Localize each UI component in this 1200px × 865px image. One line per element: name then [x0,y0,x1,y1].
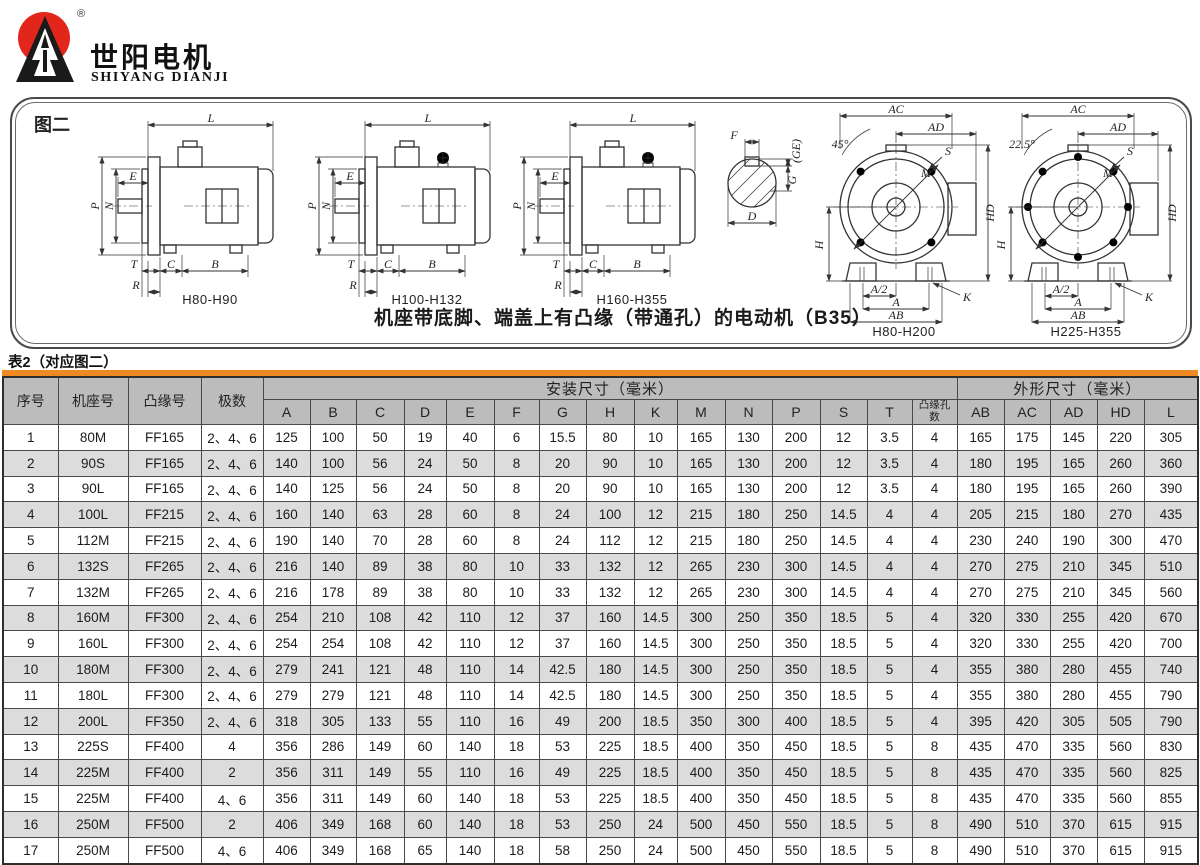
column-header: C [356,400,404,425]
motor-outline [840,145,976,281]
figure-caption: 机座带底脚、端盖上有凸缘（带通孔）的电动机（B35） [374,303,872,330]
table-cell: 110 [446,760,494,786]
table-cell: 70 [356,528,404,554]
table-cell: 300 [725,708,772,734]
column-header: T [867,400,912,425]
table-cell: 225M [58,786,128,812]
table-cell: 2、4、6 [201,682,263,708]
table-cell: 216 [263,553,310,579]
table-cell: 265 [677,579,725,605]
table-row: 11180LFF3002、4、6279279121481101442.51801… [3,682,1198,708]
table-cell: 140 [310,553,356,579]
dim-label-p: P [512,202,524,211]
table-cell: 89 [356,553,404,579]
table-cell: 420 [1004,708,1050,734]
table-cell: 205 [957,502,1004,528]
table-cell: 275 [1004,579,1050,605]
table-cell: 4 [912,631,957,657]
dim-label-r: R [131,278,140,292]
table-cell: 18.5 [820,734,867,760]
table-cell: 132S [58,553,128,579]
table-cell: 165 [1050,476,1097,502]
table-cell: 279 [263,657,310,683]
table-cell: FF500 [128,811,201,837]
table-cell: 18.5 [820,760,867,786]
table-cell: 855 [1144,786,1198,812]
table-cell: 4 [867,502,912,528]
table-cell: 2、4、6 [201,502,263,528]
table-cell: 335 [1050,734,1097,760]
table-cell: 255 [1050,605,1097,631]
table-cell: 279 [310,682,356,708]
table-cell: FF400 [128,786,201,812]
table-cell: 400 [677,786,725,812]
dim-label-k: K [962,290,972,304]
dim-label-ab: AB [1070,308,1086,322]
table-cell: 4 [201,734,263,760]
table-cell: 615 [1097,811,1144,837]
table-cell: 180 [957,450,1004,476]
table-cell: 215 [677,502,725,528]
table-cell: 8 [3,605,58,631]
table-cell: 215 [677,528,725,554]
table-cell: 10 [634,425,677,451]
table-cell: 250 [725,631,772,657]
table-cell: 395 [957,708,1004,734]
table-cell: 14.5 [634,631,677,657]
column-header: AC [1004,400,1050,425]
motor-outline [1022,145,1158,281]
table-cell: 53 [539,811,586,837]
table-cell: 110 [446,605,494,631]
dim-label-hd: HD [1165,204,1179,223]
table-cell: 89 [356,579,404,605]
table-cell: 18.5 [820,682,867,708]
table-cell: 254 [263,631,310,657]
table-cell: 48 [404,657,446,683]
table-cell: 355 [957,682,1004,708]
table-cell: 260 [1097,476,1144,502]
table-cell: 80 [446,579,494,605]
table-cell: 435 [957,786,1004,812]
dim-label-s: S [1127,144,1133,158]
table-cell: 455 [1097,657,1144,683]
dim-label-p: P [90,202,102,211]
table-cell: 370 [1050,811,1097,837]
table-cell: 560 [1097,734,1144,760]
dim-label-g: G [785,175,799,184]
table-row: 5112MFF2152、4、61901407028608241121221518… [3,528,1198,554]
table-cell: 400 [772,708,820,734]
table-cell: FF165 [128,450,201,476]
table-cell: 60 [404,786,446,812]
table-cell: 12 [820,450,867,476]
table-cell: 18.5 [634,734,677,760]
table-cell: 180 [586,657,634,683]
table-row: 8160MFF3002、4、625421010842110123716014.5… [3,605,1198,631]
table-cell: 5 [867,682,912,708]
table-cell: 180 [725,502,772,528]
table-cell: 6 [494,425,539,451]
table-cell: 110 [446,708,494,734]
table-row: 6132SFF2652、4、62161408938801033132122652… [3,553,1198,579]
table-cell: 53 [539,734,586,760]
table-cell: 18 [494,837,539,863]
table-cell: 12 [634,579,677,605]
table-cell: 300 [677,605,725,631]
table-cell: 390 [1144,476,1198,502]
dim-label-m: M [920,166,932,180]
table-cell: 24 [634,837,677,863]
dim-label-t: T [553,257,561,271]
table-cell: 490 [957,811,1004,837]
dim-label-n: N [524,201,538,211]
table-cell: 53 [539,786,586,812]
table-cell: 254 [263,605,310,631]
table-cell: 8 [912,760,957,786]
table-cell: 14.5 [634,605,677,631]
table-cell: 33 [539,579,586,605]
table-cell: 100 [310,425,356,451]
foot-slots [860,267,932,281]
drawing-side-view-1: L P N E T C B R H80-H90 [90,111,305,312]
table-cell: 2、4、6 [201,605,263,631]
column-header: F [494,400,539,425]
table-cell: 121 [356,657,404,683]
table-cell: 490 [957,837,1004,863]
motor-side-view: L P N E T C B R H80-H90 [90,111,305,307]
table-cell: 18.5 [820,657,867,683]
dim-label-c: C [384,257,393,271]
table-cell: 16 [3,811,58,837]
table-cell: 4 [3,502,58,528]
drawing-side-view-3: L P N E T C B R H160-H355 [512,111,727,312]
table-cell: 37 [539,631,586,657]
table-cell: 380 [1004,657,1050,683]
table-cell: 108 [356,631,404,657]
table-cell: 140 [263,476,310,502]
table-cell: 560 [1144,579,1198,605]
table-cell: 356 [263,760,310,786]
table-cell: 2、4、6 [201,528,263,554]
column-header: 凸缘孔数 [912,400,957,425]
table-cell: 80M [58,425,128,451]
table-cell: 180L [58,682,128,708]
table-cell: 63 [356,502,404,528]
column-header: N [725,400,772,425]
dim-label-l: L [424,111,432,125]
dim-label-a: A [1073,295,1082,309]
table-cell: 241 [310,657,356,683]
table-cell: 254 [310,631,356,657]
table-cell: 4 [912,682,957,708]
table-cell: 450 [772,734,820,760]
table-cell: 350 [725,786,772,812]
table-cell: 2、4、6 [201,425,263,451]
motor-front-view: AC AD 22.5° S M HD H A/2 A AB K H225-H35… [994,103,1184,339]
motor-outline [540,141,695,255]
table-cell: 180 [1050,502,1097,528]
table-title: 表2（对应图二） [8,351,118,372]
table-cell: 56 [356,450,404,476]
table-cell: 160 [586,605,634,631]
table-cell: 140 [446,837,494,863]
dim-label-r: R [553,278,562,292]
table-cell: 915 [1144,811,1198,837]
table-cell: 270 [957,553,1004,579]
table-cell: 149 [356,760,404,786]
table-cell: 190 [263,528,310,554]
table-row: 4100LFF2152、4、61601406328608241001221518… [3,502,1198,528]
table-cell: 149 [356,786,404,812]
table-cell: 300 [677,657,725,683]
table-cell: 318 [263,708,310,734]
column-header: M [677,400,725,425]
table-cell: 500 [677,811,725,837]
table-cell: 560 [1097,786,1144,812]
table-cell: FF165 [128,425,201,451]
table-cell: 8 [912,786,957,812]
column-header: S [820,400,867,425]
table-cell: 65 [404,837,446,863]
table-cell: 100L [58,502,128,528]
table-cell: 14 [494,682,539,708]
catalog-page: { "logo": { "brand_cn": "世阳电机", "brand_e… [0,0,1200,851]
dim-label-p: P [307,202,319,211]
table-cell: 14 [494,657,539,683]
table-cell: 60 [446,528,494,554]
dim-label-h: H [994,239,1008,250]
table-cell: 825 [1144,760,1198,786]
table-cell: 4 [912,528,957,554]
figure-box: 图二 [10,97,1192,349]
table-cell: FF350 [128,708,201,734]
foot-slots [1042,267,1114,281]
table-cell: FF400 [128,760,201,786]
table-cell: 5 [867,657,912,683]
table-cell: 12 [494,605,539,631]
table-cell: 49 [539,760,586,786]
dim-label-a2: A/2 [870,282,888,296]
table-cell: 140 [446,811,494,837]
table-cell: 24 [404,450,446,476]
table-cell: 250 [725,605,772,631]
dim-label-ab: AB [888,308,904,322]
figure-label: 图二 [34,111,70,137]
table-cell: 12 [820,425,867,451]
table-cell: 130 [725,425,772,451]
table-cell: 230 [725,579,772,605]
table-cell: 240 [1004,528,1050,554]
dim-label-ad: AD [1109,120,1126,134]
table-cell: 80 [586,425,634,451]
column-header: G [539,400,586,425]
table-cell: 3.5 [867,476,912,502]
table-cell: 2 [3,450,58,476]
table-cell: 2、4、6 [201,450,263,476]
table-cell: 5 [867,708,912,734]
table-row: 10180MFF3002、4、6279241121481101442.51801… [3,657,1198,683]
table-cell: 195 [1004,476,1050,502]
table-cell: FF300 [128,657,201,683]
table-cell: 830 [1144,734,1198,760]
dim-label-h: H [812,239,826,250]
table-cell: 165 [677,476,725,502]
table-cell: 19 [404,425,446,451]
table-body: 180MFF1652、4、6125100501940615.5801016513… [3,425,1198,864]
dim-label-ad: AD [927,120,944,134]
table-cell: 149 [356,734,404,760]
table-cell: 4 [912,450,957,476]
table-cell: 250 [772,528,820,554]
table-cell: 260 [1097,450,1144,476]
table-cell: 165 [957,425,1004,451]
eyebolt-icon [642,152,654,167]
table-cell: 49 [539,708,586,734]
table-cell: 350 [772,657,820,683]
table-cell: 215 [1004,502,1050,528]
table-cell: 450 [725,811,772,837]
table-cell: 10 [494,553,539,579]
table-cell: 470 [1004,786,1050,812]
table-cell: 48 [404,682,446,708]
table-cell: 250M [58,811,128,837]
table-cell: 300 [677,682,725,708]
table-cell: 165 [677,425,725,451]
table-row: 16250MFF50024063491686014018532502450045… [3,811,1198,837]
table-cell: 140 [310,502,356,528]
dim-label-n: N [319,201,333,211]
table-cell: 14.5 [820,502,867,528]
table-cell: 320 [957,605,1004,631]
table-cell: 740 [1144,657,1198,683]
table-cell: 11 [3,682,58,708]
column-header: AB [957,400,1004,425]
table-cell: 406 [263,811,310,837]
table-cell: 300 [1097,528,1144,554]
table-cell: 790 [1144,682,1198,708]
dim-label-ac: AC [1069,103,1086,116]
dim-label-d: D [747,209,757,223]
table-cell: 33 [539,553,586,579]
table-cell: 18.5 [820,708,867,734]
table-cell: 17 [3,837,58,863]
table-cell: 3.5 [867,450,912,476]
table-cell: 24 [539,502,586,528]
table-cell: 140 [446,734,494,760]
table-cell: 165 [677,450,725,476]
table-cell: 3.5 [867,425,912,451]
company-logo: ® 世阳电机 SHIYANG DIANJI [14,6,434,96]
table-cell: 216 [263,579,310,605]
table-cell: 18.5 [820,631,867,657]
column-header: H [586,400,634,425]
table-cell: 450 [772,760,820,786]
table-cell: 5 [867,837,912,863]
table-cell: 450 [772,786,820,812]
drawing-caption: H80-H200 [872,324,935,339]
table-cell: 18.5 [820,811,867,837]
table-cell: 8 [912,734,957,760]
dim-label-a2: A/2 [1052,282,1070,296]
dim-label-s: S [945,144,951,158]
table-cell: 110 [446,657,494,683]
table-cell: 50 [356,425,404,451]
table-cell: 210 [310,605,356,631]
table-cell: 40 [446,425,494,451]
table-cell: 145 [1050,425,1097,451]
table-cell: 2、4、6 [201,476,263,502]
table-cell: 4 [867,528,912,554]
table-row: 17250MFF5004、640634916865140185825024500… [3,837,1198,863]
table-cell: 470 [1004,734,1050,760]
table-cell: 8 [912,837,957,863]
table-cell: 280 [1050,682,1097,708]
table-cell: 12 [634,502,677,528]
table-cell: 300 [772,579,820,605]
table-cell: 90 [586,450,634,476]
table-cell: 12 [494,631,539,657]
dim-label-t: T [131,257,139,271]
table-row: 7132MFF2652、4、62161788938801033132122652… [3,579,1198,605]
table-cell: 24 [404,476,446,502]
table-cell: 250 [772,502,820,528]
table-cell: 2 [201,811,263,837]
table-cell: 2、4、6 [201,579,263,605]
table-cell: 350 [725,734,772,760]
column-header: HD [1097,400,1144,425]
table-cell: 8 [494,476,539,502]
table-cell: 400 [677,734,725,760]
table-cell: 225M [58,760,128,786]
table-cell: FF500 [128,837,201,863]
table-cell: 210 [1050,579,1097,605]
table-cell: 500 [677,837,725,863]
column-header: B [310,400,356,425]
table-cell: 2、4、6 [201,553,263,579]
table-cell: 400 [677,760,725,786]
table-cell: 1 [3,425,58,451]
table-cell: 10 [3,657,58,683]
table-cell: 125 [310,476,356,502]
table-cell: 335 [1050,760,1097,786]
table-cell: 50 [446,450,494,476]
table-cell: 140 [263,450,310,476]
table-cell: 14 [3,760,58,786]
group-header-outline: 外形尺寸（毫米） [957,377,1198,400]
table-cell: 140 [446,786,494,812]
brand-name-en: SHIYANG DIANJI [91,70,229,86]
table-cell: 37 [539,605,586,631]
table-cell: 160L [58,631,128,657]
table-cell: 2、4、6 [201,708,263,734]
table-cell: 90 [586,476,634,502]
table-cell: 42.5 [539,657,586,683]
table-cell: 12 [634,528,677,554]
table-cell: FF265 [128,553,201,579]
table-cell: 349 [310,837,356,863]
table-cell: 4 [912,657,957,683]
table-cell: 550 [772,811,820,837]
table-cell: 12 [820,476,867,502]
table-row: 12200LFF3502、4、631830513355110164920018.… [3,708,1198,734]
motor-side-view: L P N E T C B R H100-H132 [307,111,522,307]
table-cell: 132 [586,579,634,605]
table-cell: 10 [494,579,539,605]
table-cell: 50 [446,476,494,502]
dim-label-e: E [345,169,354,183]
table-cell: 356 [263,786,310,812]
